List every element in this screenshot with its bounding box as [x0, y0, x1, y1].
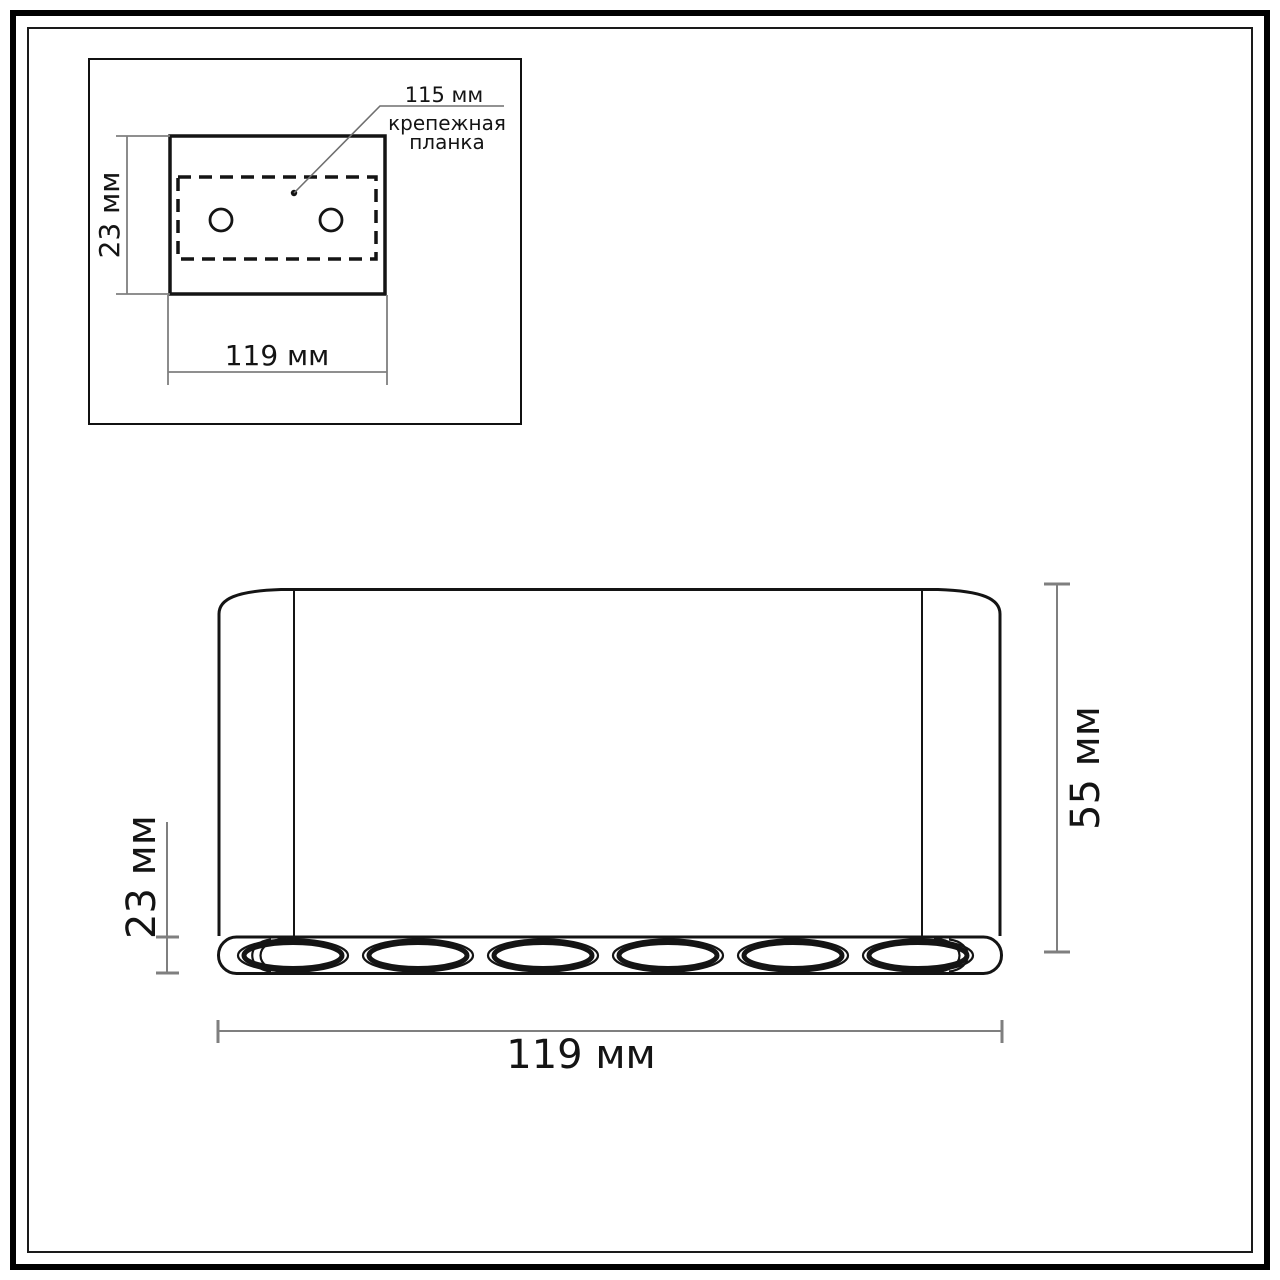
spot-ring-inner [619, 943, 717, 969]
spot-ring-inner [369, 943, 467, 969]
lip-dimension-label: 23 мм [119, 815, 165, 939]
fixture-body-outline [219, 590, 1000, 937]
mount-hole [210, 209, 232, 231]
fixture-footprint-outline [170, 136, 385, 294]
mount-view-drawing: 115 мм крепежная планка 23 мм 119 мм [90, 60, 520, 423]
width-dimension-label: 119 мм [225, 339, 330, 372]
spot-ring-inner [494, 943, 592, 969]
drawing-sheet: 115 мм крепежная планка 23 мм 119 мм [0, 0, 1280, 1280]
front-view-drawing: 23 мм 55 мм 119 мм [100, 560, 1180, 1120]
spot-row [238, 940, 973, 972]
spot-ring-inner [244, 943, 342, 969]
spot-ring-inner [869, 943, 967, 969]
plate-callout-label-line2: планка [409, 130, 485, 154]
mount-holes-group [210, 209, 342, 231]
height-dimension-label: 55 мм [1063, 706, 1109, 830]
plate-width-callout-value: 115 мм [405, 83, 483, 107]
mount-view-panel: 115 мм крепежная планка 23 мм 119 мм [88, 58, 522, 425]
depth-dimension-label: 23 мм [93, 172, 126, 259]
mount-hole [320, 209, 342, 231]
mount-plate-dashed-outline [178, 177, 376, 259]
front-view-panel: 23 мм 55 мм 119 мм [100, 560, 1180, 1120]
width-dimension-label: 119 мм [506, 1032, 655, 1078]
spot-ring-inner [744, 943, 842, 969]
